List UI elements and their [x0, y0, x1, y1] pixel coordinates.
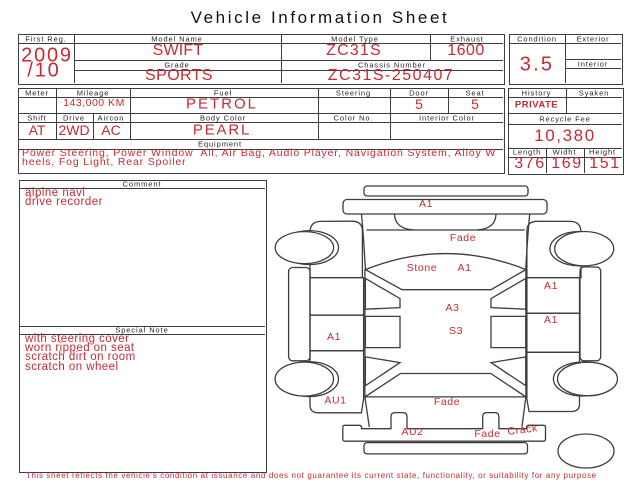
svg-text:A1: A1: [327, 331, 341, 343]
svg-text:A1: A1: [419, 198, 433, 210]
svg-text:S3: S3: [449, 325, 463, 337]
svg-text:Fade: Fade: [450, 232, 476, 244]
svg-text:A3: A3: [445, 302, 459, 314]
svg-text:A1: A1: [544, 280, 558, 292]
svg-text:AU2: AU2: [401, 426, 423, 438]
svg-text:Stone: Stone: [407, 262, 437, 274]
svg-text:AU1: AU1: [324, 395, 346, 407]
svg-text:A1: A1: [544, 314, 558, 326]
svg-text:A1: A1: [457, 262, 471, 274]
svg-text:Crack: Crack: [507, 422, 539, 438]
svg-text:Fade: Fade: [434, 396, 460, 408]
svg-text:Fade: Fade: [474, 428, 500, 440]
